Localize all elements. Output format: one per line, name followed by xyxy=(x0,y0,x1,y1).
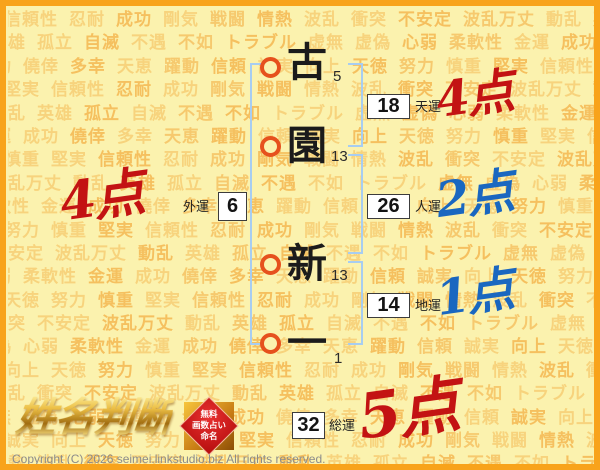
free-naming-badge[interactable]: 無料 画数占い 命名 xyxy=(184,402,234,450)
bracket-chiun xyxy=(348,261,363,345)
badge-line-2: 画数占い xyxy=(178,420,240,431)
souun-score: 5点 xyxy=(354,373,461,448)
jinun-value-box: 26 xyxy=(367,194,410,219)
bracket-jinun xyxy=(348,154,363,254)
badge-line-1: 無料 xyxy=(178,409,240,420)
stroke-count-1: 5 xyxy=(333,69,341,84)
souun-value-box: 32 xyxy=(292,412,325,439)
copyright-text: Copyright (C) 2026 seimei.linkstudio.biz… xyxy=(12,452,325,466)
stroke-count-2: 13 xyxy=(331,149,348,164)
chiun-value-box: 14 xyxy=(367,293,410,318)
tenun-value-box: 18 xyxy=(367,94,410,119)
char-marker-circle xyxy=(260,136,281,157)
char-marker-circle xyxy=(260,333,281,354)
char-marker-circle xyxy=(260,254,281,275)
badge-line-3: 命名 xyxy=(178,431,240,442)
badge-text: 無料 画数占い 命名 xyxy=(178,409,240,442)
stroke-count-4: 1 xyxy=(334,351,342,366)
name-char-4: 一 xyxy=(285,322,329,364)
name-char-1: 古 xyxy=(285,42,329,84)
gaiun-label: 外運 xyxy=(183,200,209,214)
tenun-score: 4点 xyxy=(433,67,514,125)
char-marker-circle xyxy=(260,57,281,78)
gaiun-value-box: 6 xyxy=(218,192,247,221)
site-logo[interactable]: 姓名判断 xyxy=(13,394,174,442)
name-char-2: 園 xyxy=(285,125,329,167)
jinun-score: 2点 xyxy=(433,167,514,225)
gaiun-score: 4点 xyxy=(57,167,146,230)
name-char-3: 新 xyxy=(285,243,329,285)
seimei-result-panel: 信頼性忍耐成功剛気戦闘情熱波乱衝突不安定波乱万丈動乱英雄孤立自滅英雄孤立自滅不遇… xyxy=(0,0,600,470)
bracket-gaiun xyxy=(250,63,265,345)
stroke-count-3: 13 xyxy=(331,268,348,283)
bracket-tenun xyxy=(348,63,363,147)
chiun-score: 1点 xyxy=(433,265,514,323)
souun-label: 総運 xyxy=(329,419,355,433)
